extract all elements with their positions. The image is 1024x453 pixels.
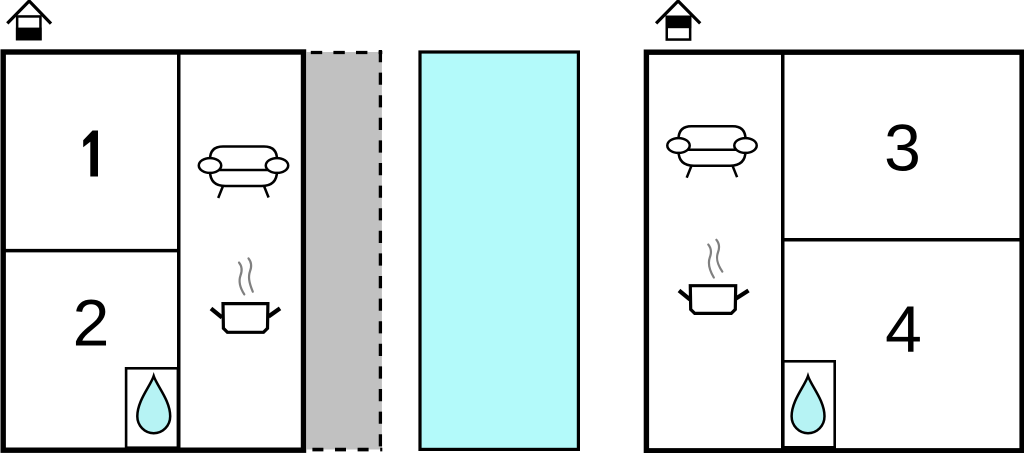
svg-text:4: 4	[885, 292, 922, 366]
svg-text:3: 3	[884, 111, 921, 185]
svg-text:2: 2	[73, 286, 110, 360]
